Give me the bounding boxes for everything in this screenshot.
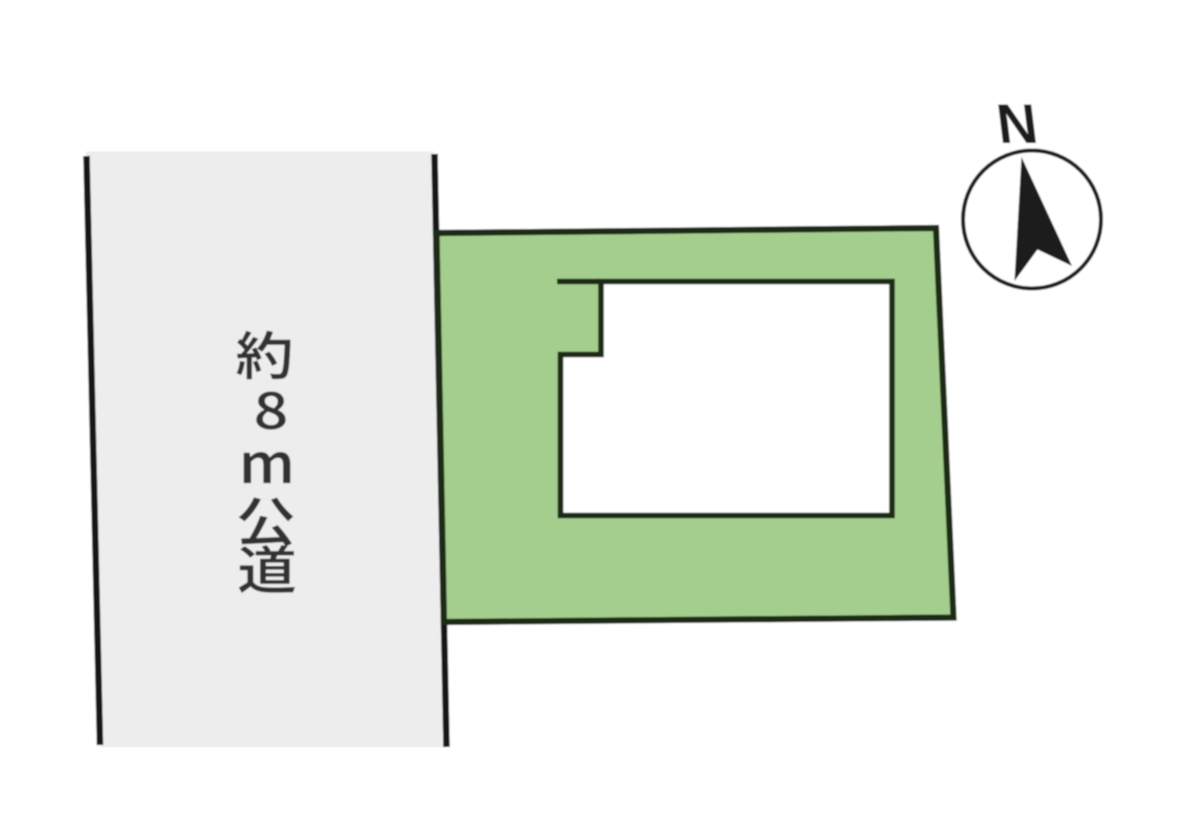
svg-text:N: N [993, 92, 1041, 155]
